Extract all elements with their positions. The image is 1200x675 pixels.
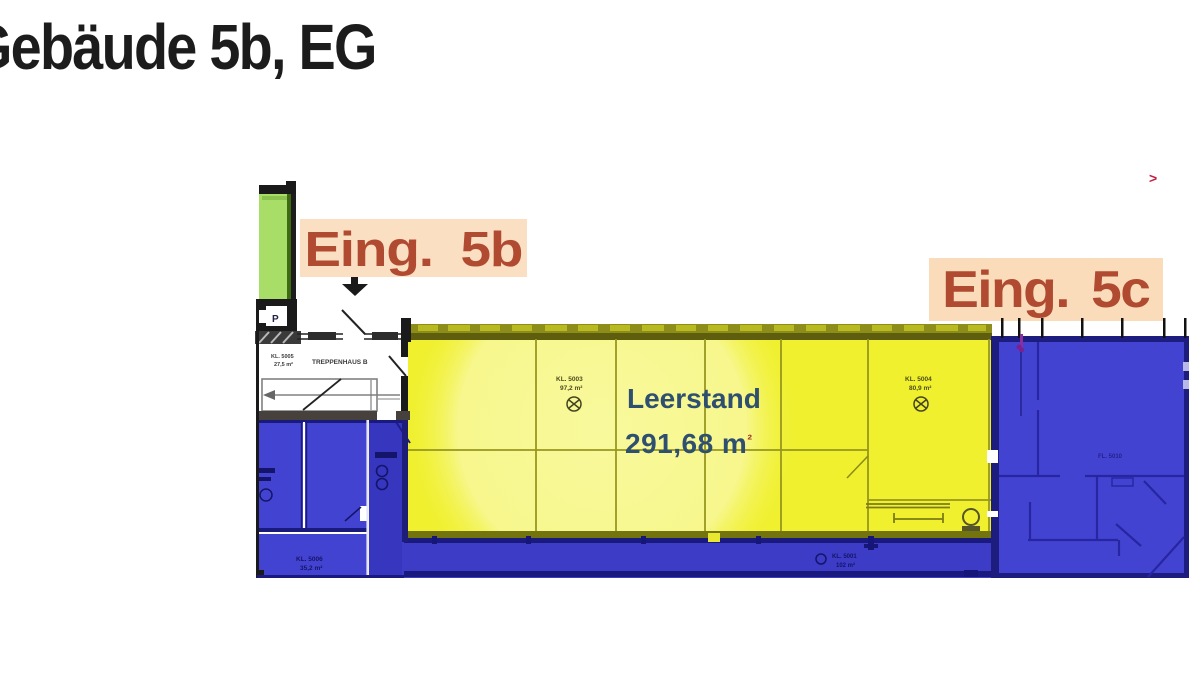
svg-text:KL. 5003: KL. 5003 <box>556 376 583 383</box>
svg-text:FL. 5010: FL. 5010 <box>1098 454 1123 460</box>
svg-text:27,5 m²: 27,5 m² <box>274 361 293 368</box>
svg-text:KL. 5005: KL. 5005 <box>271 354 294 360</box>
svg-text:102 m²: 102 m² <box>836 562 855 569</box>
svg-text:TREPPENHAUS B: TREPPENHAUS B <box>312 359 368 366</box>
svg-text:KL. 5006: KL. 5006 <box>296 556 323 563</box>
svg-text:80,9 m²: 80,9 m² <box>909 385 932 392</box>
svg-text:>: > <box>1149 170 1157 186</box>
svg-text:291,68 m²: 291,68 m² <box>625 428 753 459</box>
svg-text:Leerstand: Leerstand <box>627 383 761 414</box>
svg-text:97,2 m²: 97,2 m² <box>560 385 583 392</box>
svg-text:KL. 5001: KL. 5001 <box>832 554 857 560</box>
svg-text:35,2 m²: 35,2 m² <box>300 565 323 572</box>
svg-text:KL. 5004: KL. 5004 <box>905 376 932 383</box>
svg-text:P: P <box>272 314 279 325</box>
